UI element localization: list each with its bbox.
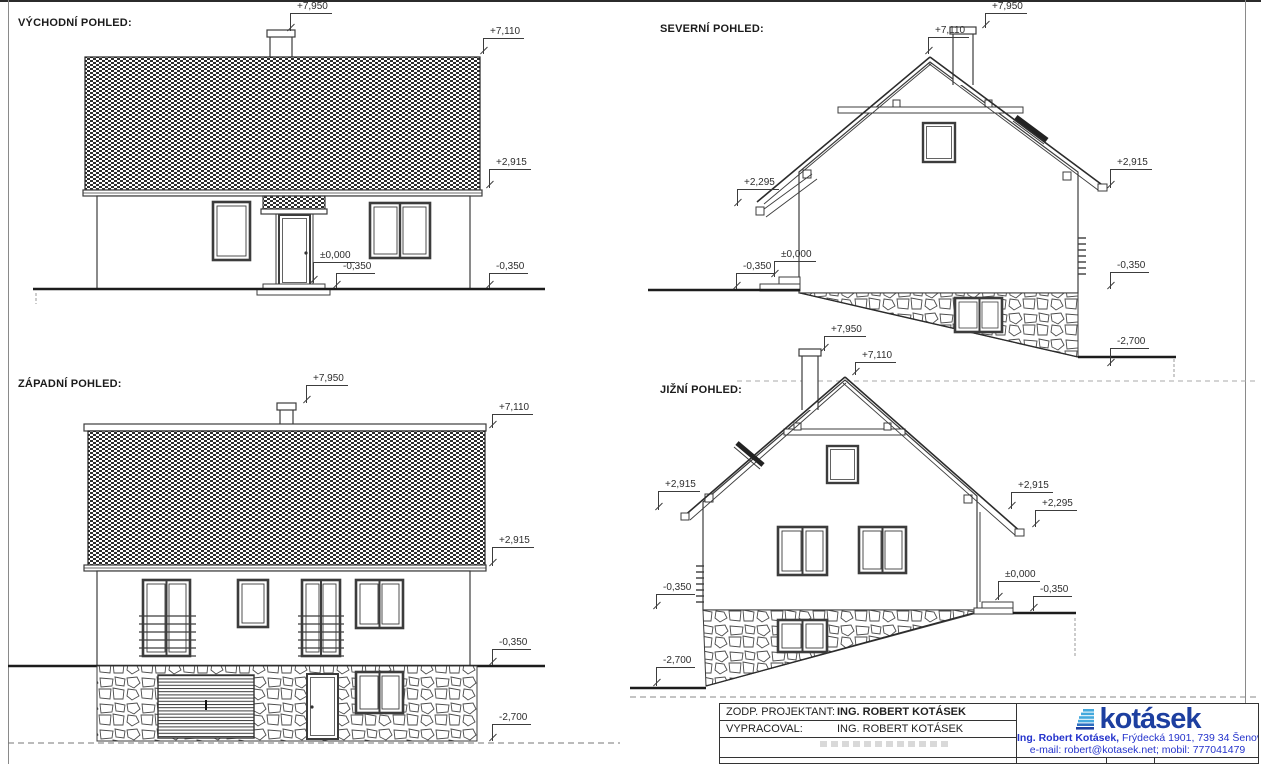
cell-divider: [1016, 758, 1017, 763]
cell-divider: [1154, 758, 1155, 763]
elev-mark-east-eave: +2,915: [489, 158, 531, 170]
elev-mark-south-ridge: +7,110: [855, 351, 896, 363]
purlin-end: [1063, 172, 1071, 180]
logo-wordmark: kotásek: [1099, 706, 1200, 732]
title-block-logo-cell: kotásek Ing. Robert Kotásek, Frýdecká 19…: [1017, 704, 1258, 758]
window-single: [238, 580, 268, 627]
roof-tiled: [85, 57, 480, 190]
east-elevation-drawing: [0, 0, 630, 350]
erased-text: [820, 741, 950, 747]
elev-mark-east-chimney: +7,950: [290, 2, 332, 14]
field-value: ING. ROBERT KOTÁSEK: [837, 706, 1016, 718]
title-block-main: ZODP. PROJEKTANT: ING. ROBERT KOTÁSEK VY…: [720, 704, 1258, 758]
chimney: [267, 30, 295, 58]
elev-mark-east-ridge: +7,110: [483, 27, 524, 39]
drawing-sheet: VÝCHODNÍ POHLED:: [0, 0, 1261, 764]
title-block: ZODP. PROJEKTANT: ING. ROBERT KOTÁSEK VY…: [719, 703, 1259, 764]
basement-window: [356, 672, 403, 713]
title-block-fields: ZODP. PROJEKTANT: ING. ROBERT KOTÁSEK VY…: [720, 704, 1017, 758]
elev-mark-south-basement-left: -2,700: [656, 656, 695, 668]
porch-roof: [261, 196, 327, 214]
title-row-vypracoval: VYPRACOVAL: ING. ROBERT KOTÁSEK: [720, 721, 1016, 738]
company-logo: kotásek: [1017, 705, 1258, 732]
ridge-cap: [84, 424, 486, 431]
elev-mark-north-porch-eave: +2,295: [737, 178, 779, 190]
garage-door: [158, 675, 254, 738]
french-window: [302, 580, 340, 656]
title-block-bottom-row: [720, 757, 1258, 763]
elev-mark-north-ground-left: -0,350: [736, 262, 775, 274]
elev-mark-south-porch-eave: +2,295: [1035, 499, 1077, 511]
field-label: VYPRACOVAL:: [720, 723, 837, 735]
elev-mark-east-ground-near: -0,350: [336, 262, 375, 274]
elev-mark-south-zero: ±0,000: [998, 570, 1040, 582]
elev-mark-south-chimney: +7,950: [824, 325, 866, 337]
purlin-end: [803, 170, 811, 178]
company-contact: e-mail: robert@kotasek.net; mobil: 77704…: [1017, 744, 1258, 756]
elev-mark-north-ridge: +7,110: [928, 26, 969, 38]
french-window: [143, 580, 190, 656]
basement-door: [307, 674, 338, 739]
elev-mark-south-ground-left: -0,350: [656, 583, 695, 595]
elev-mark-west-eave: +2,915: [492, 536, 534, 548]
title-row-empty: [720, 738, 1016, 758]
elev-mark-north-basement: -2,700: [1110, 337, 1149, 349]
ladder-rungs: [1078, 238, 1086, 274]
stone-basement: [97, 666, 477, 741]
elev-mark-north-eave: +2,915: [1110, 158, 1152, 170]
entry-door: [276, 214, 313, 286]
elev-mark-north-chimney: +7,950: [985, 2, 1027, 14]
entry-steps: [974, 602, 1013, 614]
window-double: [859, 527, 906, 573]
elev-mark-south-ground-right: -0,350: [1033, 585, 1072, 597]
elev-mark-west-ground: -0,350: [492, 638, 531, 650]
elev-mark-west-ridge: +7,110: [492, 403, 533, 415]
window-single: [213, 202, 250, 260]
attic-window: [827, 446, 858, 483]
field-value: ING. ROBERT KOTÁSEK: [837, 723, 1016, 735]
elev-mark-west-basement: -2,700: [492, 713, 531, 725]
elev-mark-north-zero: ±0,000: [774, 250, 816, 262]
building-bars-icon: [1074, 707, 1098, 731]
elev-mark-south-eave-right: +2,915: [1011, 481, 1053, 493]
gable-wall: [799, 62, 1078, 293]
elev-mark-north-ground-right: -0,350: [1110, 261, 1149, 273]
company-address: Ing. Robert Kotásek, Frýdecká 1901, 739 …: [1017, 732, 1258, 744]
window-double: [356, 580, 403, 628]
stone-foundation: [703, 610, 977, 686]
basement-window: [778, 620, 827, 652]
elev-mark-east-ground: -0,350: [489, 262, 528, 274]
west-elevation-drawing: [0, 350, 630, 764]
cell-divider: [1106, 758, 1107, 763]
roof-tiled: [88, 431, 485, 565]
title-row-projektant: ZODP. PROJEKTANT: ING. ROBERT KOTÁSEK: [720, 704, 1016, 721]
elev-mark-west-chimney: +7,950: [306, 374, 348, 386]
window-double: [778, 527, 827, 575]
attic-window: [923, 123, 955, 162]
field-label: ZODP. PROJEKTANT:: [720, 706, 837, 718]
elev-mark-south-eave-left: +2,915: [658, 480, 700, 492]
gable-wall: [703, 380, 977, 610]
ladder-rungs: [696, 566, 704, 602]
window-double: [370, 203, 430, 258]
south-elevation-drawing: [620, 320, 1261, 710]
